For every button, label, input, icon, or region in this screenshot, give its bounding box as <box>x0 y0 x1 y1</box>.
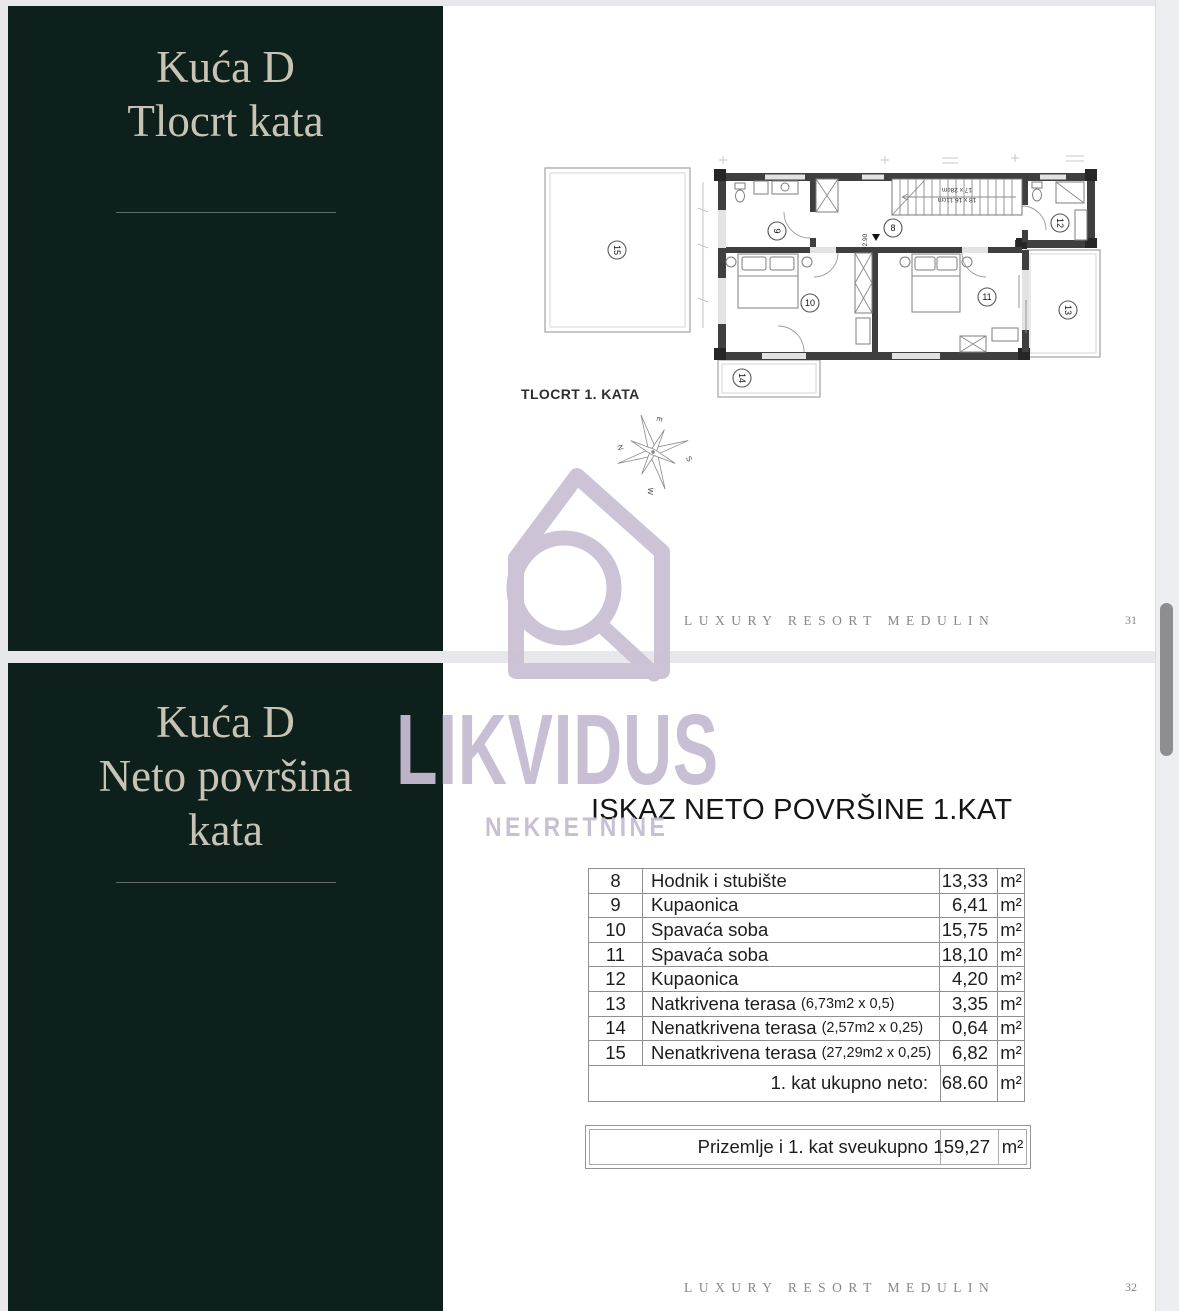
table-row: 14 Nenatkrivena terasa (2,57m2 x 0,25) 0… <box>589 1017 1024 1042</box>
scrollbar-track[interactable] <box>1155 0 1179 1311</box>
compass-s: S <box>684 454 694 463</box>
page-title: Kuća D Tlocrt kata <box>8 40 443 148</box>
row-number: 11 <box>589 943 643 967</box>
total-unit: m² <box>998 1066 1024 1101</box>
sidebar-divider <box>116 882 336 883</box>
compass-n: N <box>615 444 625 452</box>
row-name: Nenatkrivena terasa <box>651 1042 817 1064</box>
compass-rose-icon: E S W N <box>608 407 698 497</box>
compass-w: W <box>646 487 656 496</box>
summary-table: Prizemlje i 1. kat sveukupno 159,27 m² <box>585 1125 1031 1169</box>
net-area-table: 8 Hodnik i stubište 13,33 m² 9 Kupaonica… <box>588 868 1025 1102</box>
table-title: ISKAZ NETO POVRŠINE 1.KAT <box>591 794 1012 827</box>
total-label: 1. kat ukupno neto: <box>589 1066 940 1101</box>
page-title: Kuća D Neto površina kata <box>8 695 443 857</box>
row-number: 8 <box>589 869 643 893</box>
row-name: Spavaća soba <box>651 919 768 941</box>
row-unit: m² <box>998 869 1024 893</box>
title-line-3: kata <box>8 803 443 857</box>
row-value: 4,20 <box>940 967 998 991</box>
plan-caption: TLOCRT 1. KATA <box>521 386 640 402</box>
row-number: 12 <box>589 967 643 991</box>
row-value: 13,33 <box>940 869 998 893</box>
title-line-1: Kuća D <box>8 40 443 94</box>
row-unit: m² <box>998 992 1024 1016</box>
footer-brand-text: LUXURY RESORT MEDULIN <box>684 1280 995 1296</box>
row-unit: m² <box>998 918 1024 942</box>
summary-label: Prizemlje i 1. kat sveukupno <box>590 1130 940 1164</box>
net-area-rows: 8 Hodnik i stubište 13,33 m² 9 Kupaonica… <box>589 869 1024 1066</box>
row-number: 9 <box>589 894 643 918</box>
page-floor-plan: Kuća D Tlocrt kata <box>8 6 1155 651</box>
stair-note-line2: 17 x 28cm <box>942 186 972 193</box>
row-name: Hodnik i stubište <box>651 870 787 892</box>
row-number: 10 <box>589 918 643 942</box>
row-unit: m² <box>998 1041 1024 1065</box>
row-value: 3,35 <box>940 992 998 1016</box>
table-row: 11 Spavaća soba 18,10 m² <box>589 943 1024 968</box>
compass-e: E <box>655 416 665 423</box>
title-line-1: Kuća D <box>8 695 443 749</box>
bedroom-11-furniture <box>900 254 1018 352</box>
room-label-bed2: 11 <box>982 292 991 302</box>
table-row: 12 Kupaonica 4,20 m² <box>589 967 1024 992</box>
room-label-hall: 8 <box>890 223 895 233</box>
total-value: 68.60 <box>940 1066 998 1101</box>
scrollbar-thumb[interactable] <box>1160 603 1173 756</box>
row-value: 18,10 <box>940 943 998 967</box>
level-mark-label: +2.90 <box>862 233 869 250</box>
row-name: Kupaonica <box>651 894 738 916</box>
page-net-area: Kuća D Neto površina kata ISKAZ NETO POV… <box>8 663 1155 1311</box>
page-number: 31 <box>1125 613 1137 628</box>
floor-plan-drawing: 18 x 16,11cm 17 x 28cm <box>510 150 1110 410</box>
row-note: (2,57m2 x 0,25) <box>822 1020 924 1036</box>
bathroom-12-fixtures <box>1032 182 1087 240</box>
summary-row: Prizemlje i 1. kat sveukupno 159,27 m² <box>589 1129 1027 1165</box>
title-line-2: Neto površina <box>8 749 443 803</box>
table-row: 10 Spavaća soba 15,75 m² <box>589 918 1024 943</box>
row-value: 6,41 <box>940 894 998 918</box>
table-row: 9 Kupaonica 6,41 m² <box>589 894 1024 919</box>
row-number: 13 <box>589 992 643 1016</box>
summary-value: 159,27 <box>940 1130 999 1164</box>
table-row: 13 Natkrivena terasa (6,73m2 x 0,5) 3,35… <box>589 992 1024 1017</box>
table-row: 15 Nenatkrivena terasa (27,29m2 x 0,25) … <box>589 1041 1024 1066</box>
room-labels: 8 9 10 11 12 13 14 15 <box>608 214 1077 387</box>
row-value: 0,64 <box>940 1017 998 1041</box>
row-number: 15 <box>589 1041 643 1065</box>
room-label-terrace-large: 15 <box>612 245 622 255</box>
room-label-bath2: 12 <box>1055 218 1065 228</box>
row-name: Kupaonica <box>651 968 738 990</box>
row-unit: m² <box>998 894 1024 918</box>
stair-note-line1: 18 x 16,11cm <box>938 196 977 203</box>
staircase: 18 x 16,11cm 17 x 28cm <box>892 179 1022 215</box>
bathroom-9-fixtures <box>735 181 798 202</box>
bedroom-10-furniture <box>726 254 870 344</box>
row-number: 14 <box>589 1017 643 1041</box>
room-label-bath1: 9 <box>772 228 782 233</box>
row-unit: m² <box>998 967 1024 991</box>
row-name: Spavaća soba <box>651 944 768 966</box>
total-row: 1. kat ukupno neto: 68.60 m² <box>589 1066 1024 1101</box>
sidebar-net-area: Kuća D Neto površina kata <box>8 663 443 1311</box>
row-note: (6,73m2 x 0,5) <box>801 996 895 1012</box>
row-note: (27,29m2 x 0,25) <box>822 1045 932 1061</box>
summary-unit: m² <box>999 1130 1026 1164</box>
sidebar-floor-plan: Kuća D Tlocrt kata <box>8 6 443 651</box>
room-label-terrace-right: 13 <box>1063 305 1073 315</box>
footer-brand-text: LUXURY RESORT MEDULIN <box>684 613 995 629</box>
row-value: 6,82 <box>940 1041 998 1065</box>
sidebar-divider <box>116 212 336 213</box>
room-label-bed1: 10 <box>805 298 815 308</box>
row-unit: m² <box>998 1017 1024 1041</box>
row-unit: m² <box>998 943 1024 967</box>
row-name: Natkrivena terasa <box>651 993 796 1015</box>
page-number: 32 <box>1125 1280 1137 1295</box>
row-value: 15,75 <box>940 918 998 942</box>
row-name: Nenatkrivena terasa <box>651 1017 817 1039</box>
terrace-13-outline <box>1026 250 1100 357</box>
room-label-terrace-small: 14 <box>737 373 747 383</box>
table-row: 8 Hodnik i stubište 13,33 m² <box>589 869 1024 894</box>
title-line-2: Tlocrt kata <box>8 94 443 148</box>
